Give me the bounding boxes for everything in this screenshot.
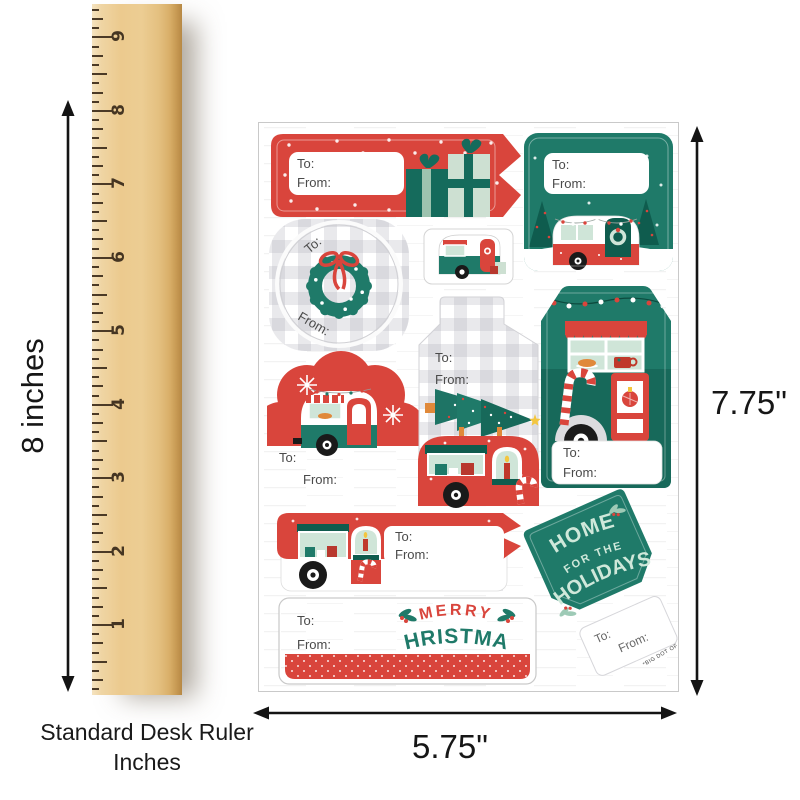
- ruler-tick: [92, 312, 103, 314]
- ruler-caption: Standard Desk Ruler Inches: [16, 718, 278, 778]
- from-label: From:: [395, 547, 429, 562]
- camper-icon: [553, 216, 639, 270]
- ruler-caption-line2: Inches: [16, 748, 278, 778]
- camper-icon: [418, 436, 539, 508]
- ruler-tick: [92, 615, 99, 617]
- from-label: From:: [552, 176, 586, 191]
- arrowhead-up-icon: [62, 100, 75, 116]
- ruler-tick: [92, 496, 103, 498]
- gift-tag-sheet-art: To: From:: [259, 123, 678, 691]
- ruler-tick: [92, 202, 103, 204]
- ruler-tick: [92, 367, 107, 369]
- tag-green-camper-closeup: To: From:: [541, 286, 671, 488]
- awning: [565, 321, 647, 340]
- ruler-tick: [92, 248, 99, 250]
- ruler-tick: [92, 92, 103, 94]
- ruler-tick: [92, 294, 107, 296]
- ruler-tick: [92, 468, 99, 470]
- gift-box-icon: [449, 468, 458, 475]
- gift-tag-sheet: To: From:: [258, 122, 679, 692]
- ruler-tick: [92, 661, 107, 663]
- ruler-tick: [92, 303, 99, 305]
- ruler-tick: [92, 450, 99, 452]
- flame-icon: [364, 532, 368, 538]
- from-label: From:: [297, 175, 331, 190]
- ruler-number: 6: [107, 245, 131, 269]
- ruler-tick: [92, 229, 99, 231]
- ruler-tick: [92, 238, 103, 240]
- gift-box-icon: [490, 266, 498, 274]
- ruler-tick: [92, 349, 103, 351]
- arrowhead-down-icon: [62, 676, 75, 692]
- tag-round-wreath: To: From:: [269, 219, 409, 351]
- ruler-tick: [92, 339, 99, 341]
- ruler-number: 3: [107, 465, 131, 489]
- pie-icon: [578, 359, 596, 367]
- ruler-tick: [92, 642, 103, 644]
- from-label: From:: [303, 472, 337, 487]
- ruler-tick: [92, 82, 99, 84]
- mug-icon: [614, 357, 631, 368]
- ruler-tick: [92, 266, 99, 268]
- ruler-tick: [92, 541, 99, 543]
- ruler-tick: [92, 679, 103, 681]
- camper-door: [351, 526, 381, 584]
- ruler-tick: [92, 119, 99, 121]
- ruler-tick: [92, 211, 99, 213]
- sticker-small-camper: [424, 229, 513, 284]
- ruler-tick: [92, 174, 99, 176]
- from-label: From:: [563, 465, 597, 480]
- ruler-tick: [92, 73, 107, 75]
- ruler-tick: [92, 459, 103, 461]
- gift-box-icon: [435, 464, 447, 475]
- awning: [306, 395, 344, 403]
- ruler-caption-line1: Standard Desk Ruler: [16, 718, 278, 748]
- flame-icon: [505, 456, 509, 463]
- ruler-tick: [92, 46, 99, 48]
- ruler-tick: [92, 532, 103, 534]
- ruler-number: 4: [107, 392, 131, 416]
- ruler-tick: [92, 395, 99, 397]
- dotted-band: [285, 654, 530, 679]
- ruler-tick: [92, 147, 107, 149]
- ruler-tick: [92, 284, 99, 286]
- ruler-tick: [92, 18, 103, 20]
- tag-red-banner-gifts: To: From:: [271, 134, 521, 217]
- ruler-tick: [92, 385, 103, 387]
- to-label: To:: [435, 350, 452, 365]
- ruler-tick: [92, 376, 99, 378]
- ruler-tick: [92, 578, 99, 580]
- ruler-tick: [92, 569, 103, 571]
- to-label: To:: [297, 156, 314, 171]
- camper-window: [445, 245, 465, 256]
- ruler-tick: [92, 560, 99, 562]
- ruler-tick: [92, 101, 99, 103]
- to-label: To:: [279, 450, 296, 465]
- ruler-tick: [92, 128, 103, 130]
- arrowhead-right-icon: [661, 707, 677, 720]
- arrowhead-up-icon: [691, 126, 704, 142]
- ruler-tick: [92, 358, 99, 360]
- ruler-tick: [92, 688, 99, 690]
- hitch: [293, 438, 302, 444]
- ruler-number: 2: [107, 539, 131, 563]
- ruler-height-label: 8 inches: [15, 316, 51, 476]
- from-label: From:: [435, 372, 469, 387]
- sheet-width-label: 5.75": [412, 728, 488, 766]
- ruler-number: 9: [107, 24, 131, 48]
- ruler-tick: [92, 431, 99, 433]
- ruler-number: 8: [107, 98, 131, 122]
- ruler-tick: [92, 275, 103, 277]
- tag-green-camper-scene: To: From:: [524, 133, 673, 271]
- to-label: To:: [395, 529, 412, 544]
- ruler-tick: [92, 523, 99, 525]
- ruler-tick: [92, 64, 99, 66]
- ruler-tick: [92, 137, 99, 139]
- ruler-tick: [92, 597, 99, 599]
- candle-icon: [363, 539, 368, 551]
- ruler-tick: [92, 505, 99, 507]
- product-size-infographic: 123456789 8 inches 7.75" 5.75" Standard …: [0, 0, 800, 800]
- ruler-number: 1: [107, 612, 131, 636]
- ruler-tick: [92, 156, 99, 158]
- tag-banner-camper: To: From:: [277, 513, 521, 591]
- wooden-ruler: 123456789: [92, 4, 182, 695]
- ruler-tick: [92, 670, 99, 672]
- to-label: To:: [297, 613, 314, 628]
- ruler-tick: [92, 9, 99, 11]
- camper-icon: [439, 235, 506, 279]
- to-label: To:: [563, 445, 580, 460]
- camper-window: [297, 524, 349, 558]
- arrowhead-down-icon: [691, 680, 704, 696]
- ruler-tick: [92, 413, 99, 415]
- ruler-tick: [92, 606, 103, 608]
- from-label: From:: [297, 637, 331, 652]
- ruler-tick: [92, 422, 103, 424]
- ruler-tick: [92, 55, 103, 57]
- ruler-tick: [92, 165, 103, 167]
- ruler-tick: [92, 193, 99, 195]
- ruler-tick: [92, 486, 99, 488]
- ruler-tick: [92, 440, 107, 442]
- ruler-number: 5: [107, 318, 131, 342]
- sheet-height-label: 7.75": [711, 384, 787, 422]
- ruler-tick: [92, 27, 99, 29]
- ruler-tick: [92, 587, 107, 589]
- awning: [425, 445, 487, 454]
- pie-icon: [318, 413, 332, 419]
- to-label: To:: [552, 157, 569, 172]
- ruler-tick: [92, 633, 99, 635]
- ruler-tick: [92, 220, 107, 222]
- ruler-tick: [92, 652, 99, 654]
- ruler-number: 7: [107, 171, 131, 195]
- gift-box-icon: [461, 463, 474, 475]
- candle-icon: [504, 463, 510, 479]
- ruler-tick: [92, 514, 107, 516]
- ruler-tick: [92, 321, 99, 323]
